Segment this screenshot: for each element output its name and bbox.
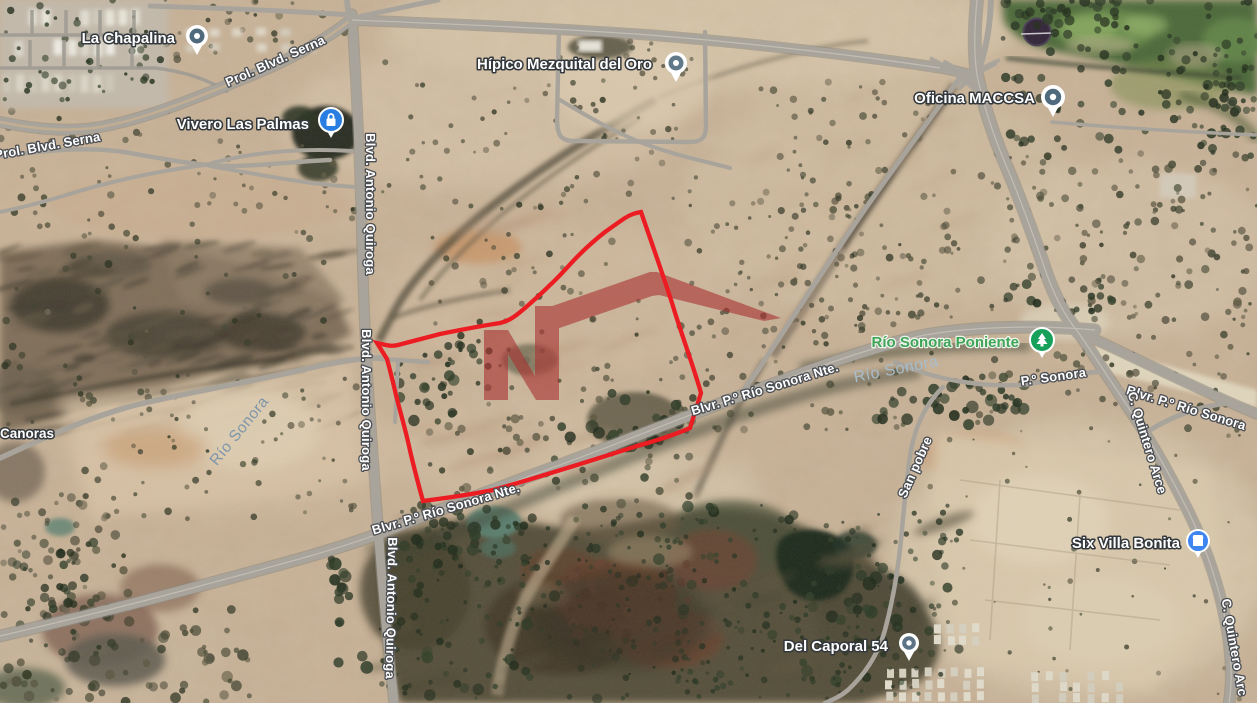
svg-text:Oficina MACCSA: Oficina MACCSA [914,90,1035,107]
svg-text:Blvd. Antonio Quiroga: Blvd. Antonio Quiroga [359,329,374,471]
svg-text:Hípico Mezquital del Oro: Hípico Mezquital del Oro [477,56,652,73]
svg-text:Blvd. Antonio Quiroga: Blvd. Antonio Quiroga [363,133,378,275]
svg-text:Blvd. Antonio Quiroga: Blvd. Antonio Quiroga [383,537,400,679]
svg-text:Del Caporal 54: Del Caporal 54 [784,638,889,655]
svg-text:Vivero Las Palmas: Vivero Las Palmas [177,116,309,133]
svg-text:La Chapalina: La Chapalina [82,30,176,47]
svg-text:Six Villa Bonita: Six Villa Bonita [1072,535,1181,552]
svg-text:Canoras: Canoras [0,426,54,441]
svg-text:Río Sonora Poniente: Río Sonora Poniente [871,334,1019,351]
